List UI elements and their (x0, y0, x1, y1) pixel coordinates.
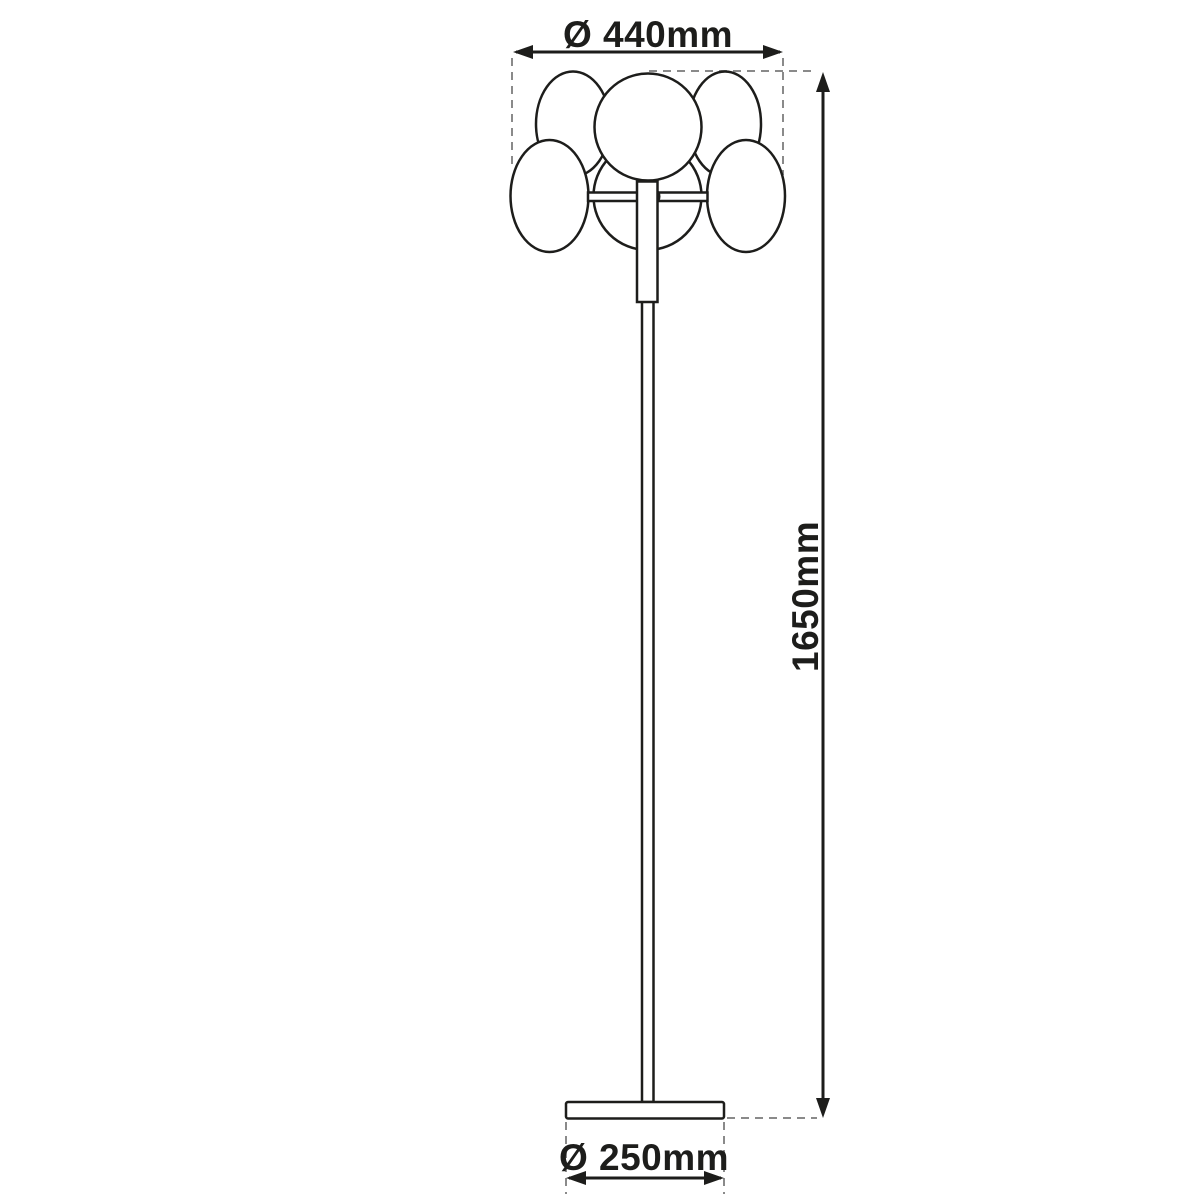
right-arm (657, 193, 708, 202)
lamp-base (566, 1102, 724, 1119)
arrow-right-icon (763, 45, 783, 59)
total-height-label: 1650mm (785, 521, 826, 672)
lamp-stem (637, 182, 658, 303)
total-height-dimension: 1650mm (785, 72, 830, 1118)
lamp-pole (642, 300, 654, 1102)
base-diameter-dimension: Ø 250mm (559, 1137, 729, 1185)
shade-center-globe (595, 74, 702, 181)
arrow-down-icon (816, 1098, 830, 1118)
left-arm (588, 193, 638, 202)
shade-lower-right-disc (707, 140, 785, 252)
arrow-up-icon (816, 72, 830, 92)
shade-diameter-dimension: Ø 440mm (513, 14, 783, 59)
floor-lamp-dimension-drawing: Ø 440mm 1650mm Ø 250mm (0, 0, 1200, 1200)
base-diameter-label: Ø 250mm (559, 1137, 729, 1178)
shade-diameter-label: Ø 440mm (563, 14, 733, 55)
shade-lower-left-disc (511, 140, 589, 252)
diagram-canvas: Ø 440mm 1650mm Ø 250mm (0, 0, 1200, 1200)
lamp-drawing (511, 72, 786, 1119)
arrow-left-icon (513, 45, 533, 59)
